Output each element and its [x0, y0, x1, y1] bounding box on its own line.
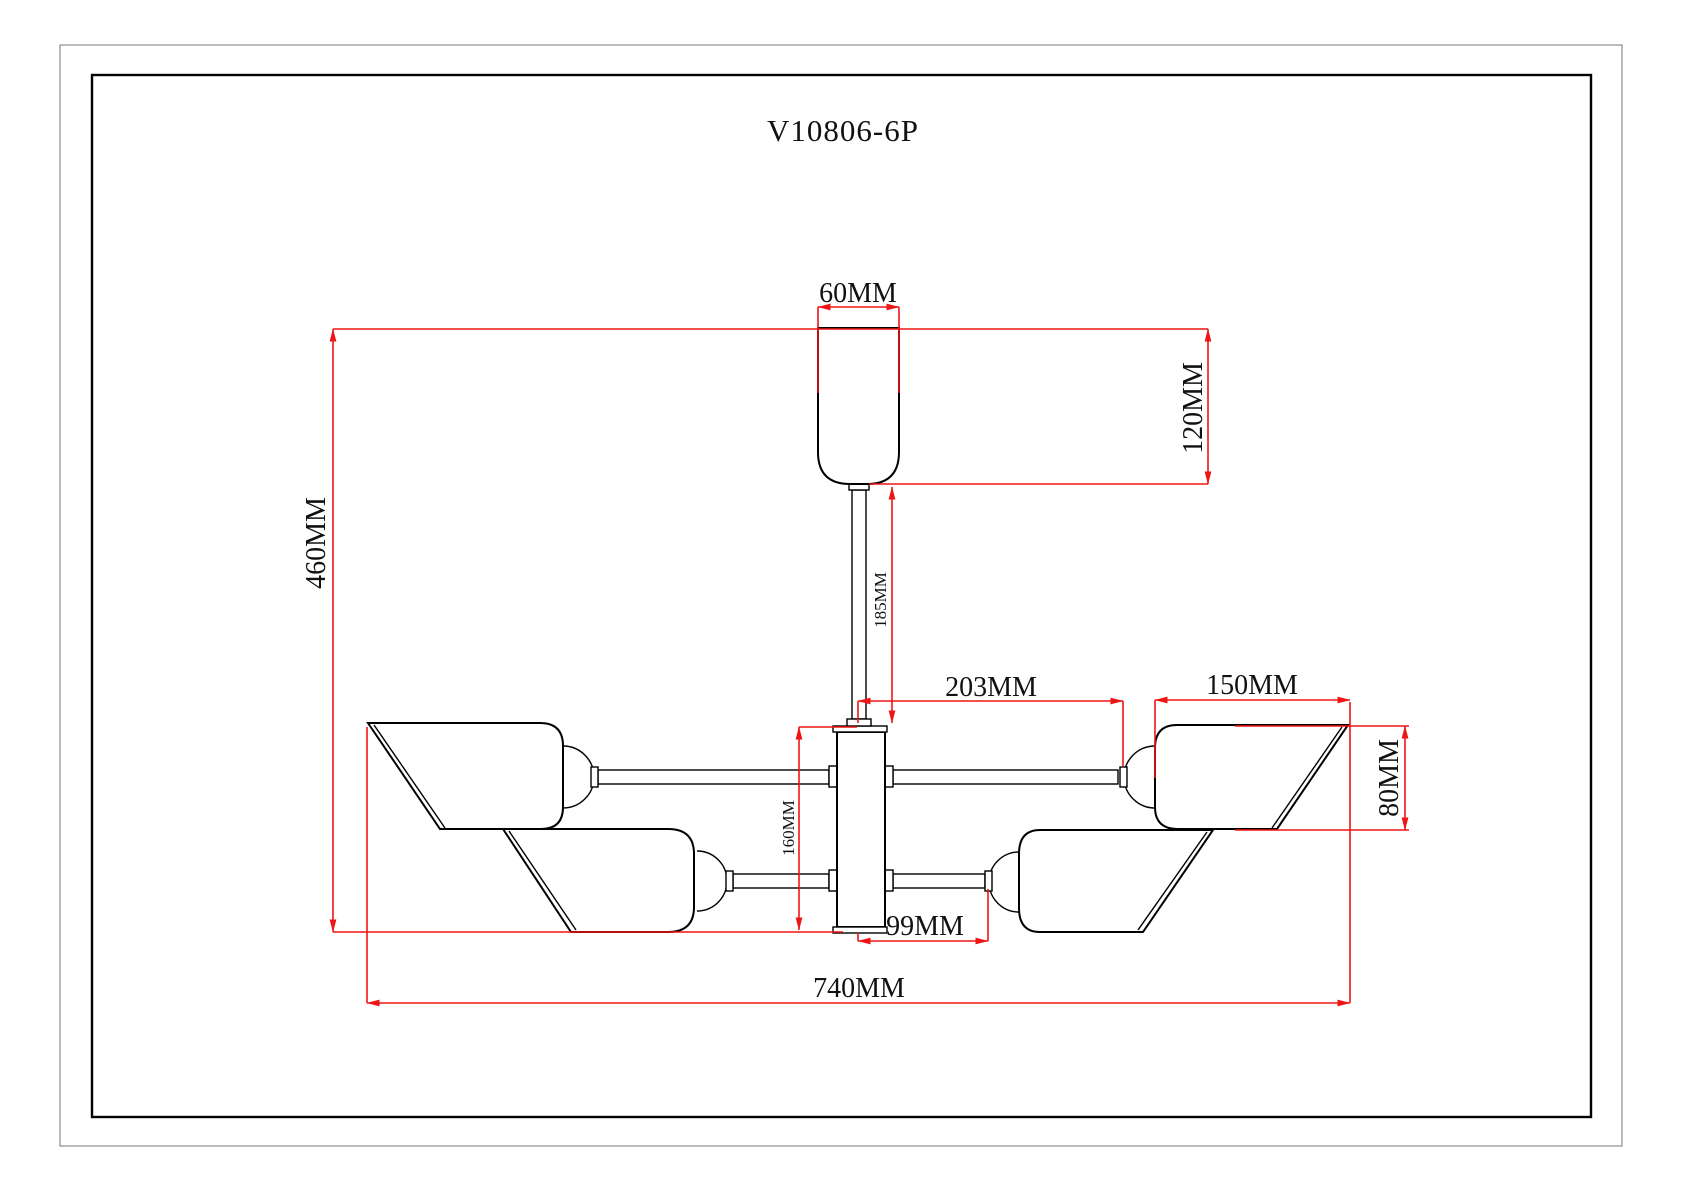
shade-lower-right [1019, 830, 1213, 932]
stem-rod [852, 490, 866, 719]
shade-lower-left [503, 829, 694, 932]
socket-lower-left [697, 851, 727, 911]
dimension-label: 60MM [819, 278, 897, 309]
collar-hub-upper-left [829, 766, 837, 787]
arm-upper-left [598, 770, 829, 784]
dimension-label: 460MM [301, 497, 332, 589]
technical-drawing-canvas: V10806-6P [0, 0, 1684, 1190]
socket-upper-left [563, 746, 594, 808]
shade-upper-left [368, 723, 563, 829]
shade-outline [368, 723, 563, 829]
shade-outline [503, 829, 694, 932]
dimension-label: 203MM [945, 672, 1037, 703]
collar-hub-lower-right [885, 870, 893, 891]
dimension-upper-arm-reach: 203MM [858, 672, 1123, 766]
dimension-label: 99MM [886, 911, 964, 942]
arm-lower-right [893, 874, 985, 888]
dimension-label: 185MM [871, 572, 890, 628]
dimension-label: 740MM [813, 973, 905, 1004]
collar-upper-right-shade [1120, 767, 1127, 787]
dimension-canopy-height: 120MM [1178, 329, 1209, 484]
dimension-label: 150MM [1206, 670, 1298, 701]
arm-lower-left [733, 874, 829, 888]
hub-body [837, 732, 885, 927]
socket-lower-right [989, 852, 1019, 912]
shade-upper-right [1155, 725, 1348, 829]
sheet-inner-border [92, 75, 1591, 1117]
collar-lower-right-shade [985, 871, 992, 891]
dimension-stem-length: 185MM [871, 487, 892, 723]
dimension-label: 80MM [1374, 739, 1405, 817]
dimension-label: 160MM [779, 800, 798, 856]
collar-hub-lower-left [829, 870, 837, 891]
dimension-total-height: 460MM [301, 329, 333, 932]
dimension-label: 120MM [1178, 362, 1209, 454]
ceiling-canopy [818, 328, 899, 484]
drawing-title: V10806-6P [767, 113, 919, 148]
shade-outline [1155, 725, 1348, 829]
collar-upper-left-shade [591, 767, 598, 787]
socket-upper-right [1124, 746, 1155, 808]
stem-bottom-collar [847, 719, 871, 726]
arm-upper-right [893, 770, 1118, 784]
drawing-sheet: V10806-6P [0, 0, 1684, 1190]
collar-lower-left-shade [726, 871, 733, 891]
shade-outline [1019, 830, 1213, 932]
collar-hub-upper-right [885, 766, 893, 787]
